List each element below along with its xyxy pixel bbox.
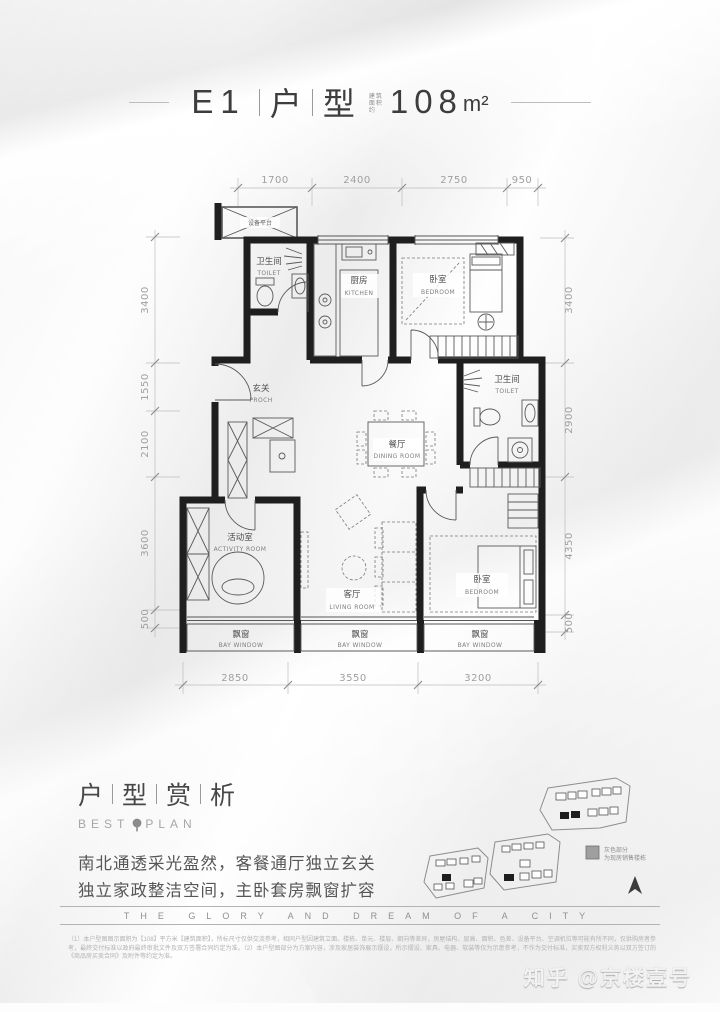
- plan-title: E1 户 型 建筑 面积 约 108 m²: [0, 76, 720, 128]
- analysis-subtitle: BEST PLAN: [78, 817, 418, 831]
- dim-left-3: 2100: [140, 430, 151, 457]
- analysis-line-1: 南北通透采光盈然，客餐通厅独立玄关: [78, 851, 418, 878]
- room-label-living-cn: 客厅: [343, 589, 361, 600]
- floorplan-drawing: 1700 2400 2750 950 2850 3550 3200 3400 1…: [130, 150, 590, 710]
- dim-right-4: 500: [564, 613, 575, 634]
- title-decor-line-left: [129, 102, 169, 103]
- legal-disclaimer: （1）本户型图图示面积为【108】平方米【建筑面积】，所标尺寸仅供交流参考，相同…: [68, 936, 656, 962]
- slogan-banner: THE GLORY AND DREAM OF A CITY: [60, 906, 660, 925]
- site-parcel-middle: [490, 834, 560, 890]
- dim-left-5: 500: [140, 609, 151, 630]
- dim-bottom-2: 3550: [339, 673, 366, 684]
- tree-icon: [131, 818, 143, 832]
- subtitle-plan: PLAN: [145, 817, 196, 831]
- dim-top-3: 2750: [440, 175, 467, 186]
- title-divider: [259, 89, 260, 116]
- room-label-bay-right-cn: 飘窗: [471, 629, 488, 640]
- room-label-bedroom-top-cn: 卧室: [429, 274, 447, 285]
- dim-left-2: 1550: [140, 373, 151, 400]
- room-label-kitchen-cn: 厨房: [350, 275, 367, 286]
- room-label-dining-en: DINING ROOM: [374, 453, 421, 460]
- room-label-activity-cn: 活动室: [227, 532, 253, 543]
- room-label-bay-mid-en: BAY WINDOW: [338, 642, 383, 649]
- room-label-toilet-right-en: TOILET: [494, 388, 518, 395]
- room-label-toilet-right-cn: 卫生间: [494, 374, 520, 385]
- door-symbols: [215, 282, 498, 530]
- subtitle-best: BEST: [78, 817, 129, 831]
- room-label-bedroom-bottom-en: BEDROOM: [465, 589, 499, 596]
- floorplan-poster: E1 户 型 建筑 面积 约 108 m²: [0, 0, 720, 1012]
- dim-left-4: 3600: [140, 529, 151, 556]
- room-label-porch-cn: 玄关: [252, 383, 270, 394]
- dim-right-3: 4350: [564, 532, 575, 559]
- room-label-porch-en: PROCH: [249, 397, 272, 404]
- area-note-line: 建筑: [369, 94, 383, 101]
- room-label-bay-left-cn: 飘窗: [232, 629, 249, 640]
- analysis-char: 析: [201, 776, 244, 812]
- area-note-line: 约: [369, 108, 383, 115]
- dim-right-1: 3400: [564, 286, 575, 313]
- area-note-line: 面积: [369, 101, 383, 108]
- room-label-dining-cn: 餐厅: [388, 440, 406, 450]
- dim-right-2: 2900: [564, 406, 575, 433]
- analysis-text: 南北通透采光盈然，客餐通厅独立玄关 独立家政整洁空间，主卧套房飘窗扩容: [78, 851, 418, 905]
- title-decor-line-right: [511, 102, 591, 103]
- area-unit: m²: [463, 91, 489, 117]
- room-label-bay-left-en: BAY WINDOW: [219, 642, 264, 649]
- site-plan: 灰色部分 为现房销售楼栋: [420, 770, 660, 910]
- site-legend: 灰色部分 为现房销售楼栋: [586, 846, 646, 862]
- dim-top-4: 950: [512, 175, 533, 186]
- room-label-bay-mid-cn: 飘窗: [351, 629, 368, 640]
- analysis-heading: 户 型 赏 析: [78, 776, 418, 812]
- room-label-bay-right-en: BAY WINDOW: [458, 642, 503, 649]
- plan-code: E1: [191, 83, 245, 121]
- room-label-toilet-top-cn: 卫生间: [256, 256, 282, 267]
- title-char-xing: 型: [323, 79, 355, 125]
- analysis-char: 户: [78, 776, 112, 812]
- legend-text-line1: 灰色部分: [604, 846, 628, 854]
- dim-bottom-1: 2850: [221, 673, 248, 684]
- analysis-char: 赏: [157, 776, 200, 812]
- site-parcel-top: [540, 778, 630, 830]
- room-label-activity-en: ACTIVITY ROOM: [214, 546, 267, 553]
- room-label-equipment: 设备平台: [248, 219, 272, 227]
- title-divider: [312, 89, 313, 116]
- site-parcel-left: [424, 848, 488, 898]
- analysis-char: 型: [113, 776, 156, 812]
- north-arrow-icon: [628, 876, 642, 894]
- equipment-platform: 设备平台: [218, 203, 297, 240]
- title-char-hu: 户: [270, 79, 302, 125]
- dim-top-1: 1700: [261, 175, 288, 186]
- room-label-toilet-top-en: TOILET: [256, 270, 280, 277]
- analysis-line-2: 独立家政整洁空间，主卧套房飘窗扩容: [78, 878, 418, 905]
- room-label-kitchen-en: KITCHEN: [345, 290, 374, 297]
- bottom-edge: [0, 1003, 720, 1012]
- plan-analysis: 户 型 赏 析 BEST PLAN 南北通透采光盈然，客餐通厅独立玄关 独立家政…: [78, 776, 418, 905]
- room-label-living-en: LIVING ROOM: [329, 604, 374, 611]
- dim-bottom-3: 3200: [464, 673, 491, 684]
- legend-gray-swatch: [586, 846, 599, 859]
- legend-text-line2: 为现房销售楼栋: [604, 854, 646, 862]
- area-value: 108: [390, 83, 463, 121]
- room-label-bedroom-top-en: BEDROOM: [421, 289, 455, 296]
- dim-left-1: 3400: [140, 286, 151, 313]
- area-note: 建筑 面积 约: [369, 94, 383, 115]
- watermark: 知乎 @京楼壹号: [524, 962, 692, 992]
- room-label-bedroom-bottom-cn: 卧室: [473, 574, 491, 585]
- dim-top-2: 2400: [343, 175, 370, 186]
- plan-furniture: [187, 243, 540, 612]
